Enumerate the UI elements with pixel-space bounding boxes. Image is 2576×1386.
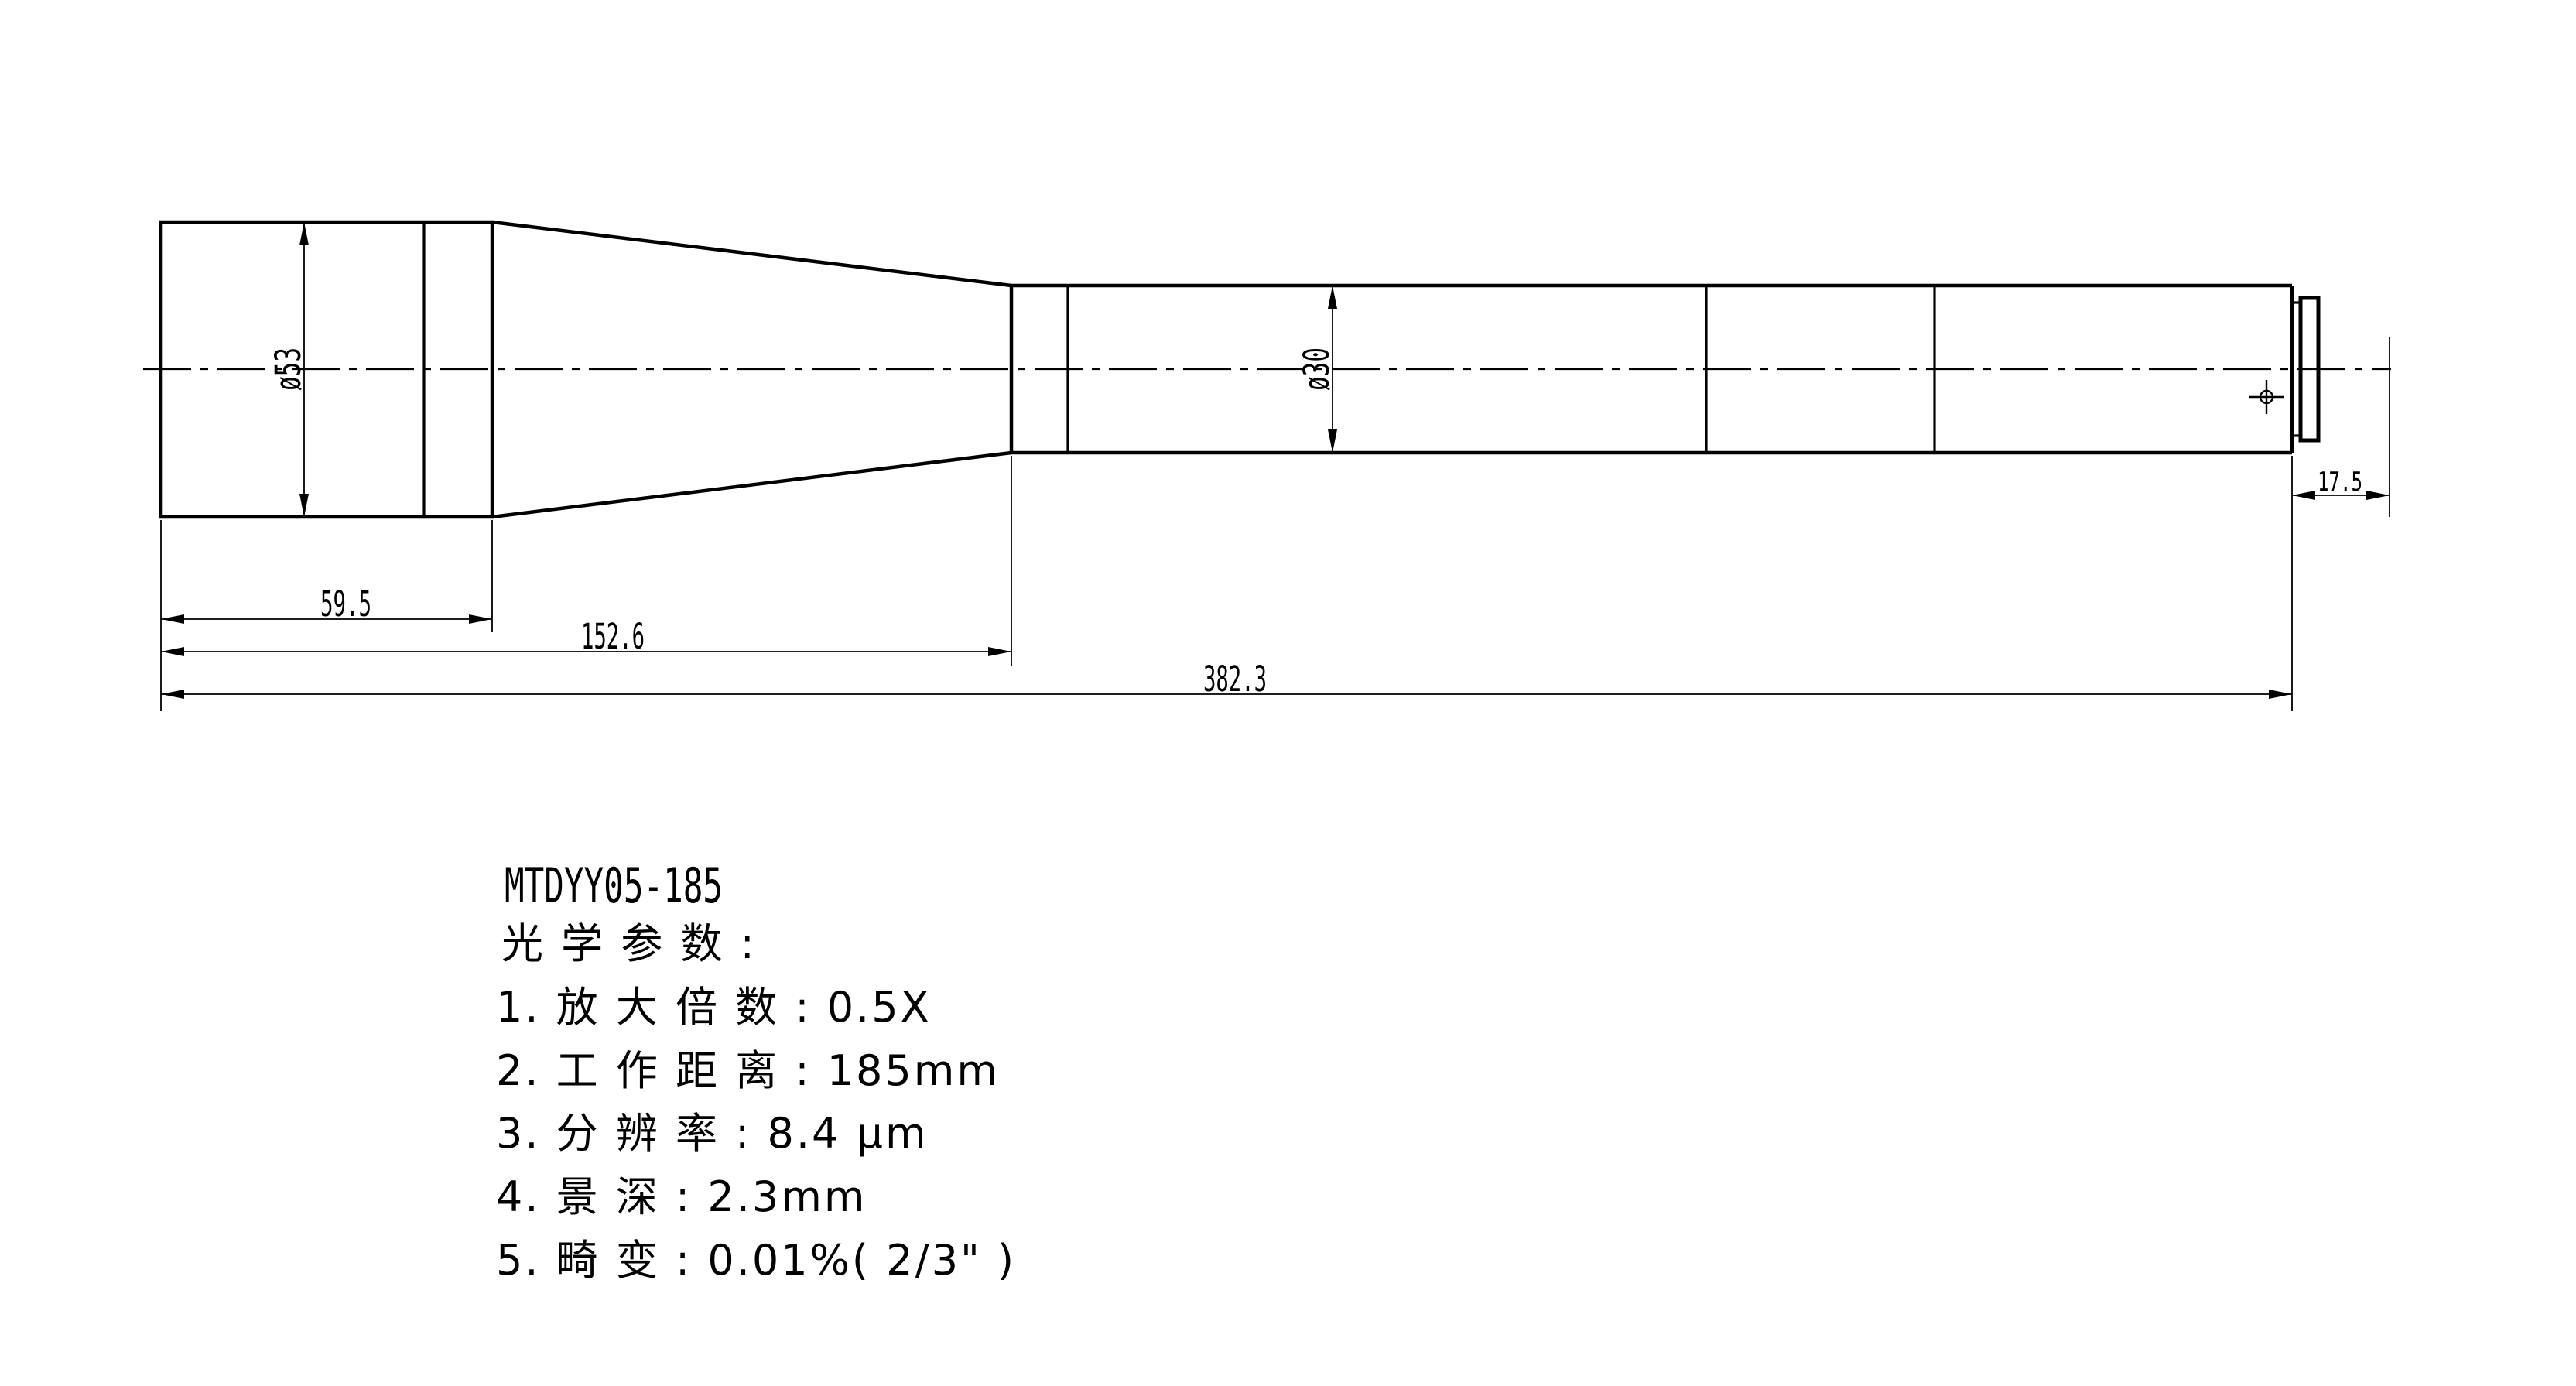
arrowhead-left-icon [2292, 491, 2315, 500]
datum-target-icon [2249, 380, 2284, 414]
dimension-mid-length: 152.6 [161, 616, 1011, 657]
dim-value-total-length: 382.3 [1203, 659, 1267, 700]
arrowhead-up-icon [1328, 286, 1337, 309]
dim-value-rear-diameter: ø53 [268, 347, 309, 391]
arrowhead-left-icon [161, 647, 184, 656]
dim-value-rear-length: 59.5 [320, 583, 371, 625]
cone-top-edge [492, 222, 1011, 286]
dimension-total-length: 382.3 [161, 659, 2292, 700]
dimension-rear-length: 59.5 [161, 583, 492, 625]
cone-bottom-edge [492, 453, 1011, 517]
dim-value-mid-length: 152.6 [581, 616, 645, 657]
note-item-magnification: 1. 放 大 倍 数 : 0.5X [496, 983, 932, 1032]
arrowhead-right-icon [469, 614, 492, 624]
dimension-tube-diameter: ø30 [1296, 286, 1337, 453]
arrowhead-right-icon [988, 647, 1011, 656]
arrowhead-right-icon [2366, 491, 2390, 500]
arrowhead-down-icon [1328, 429, 1337, 453]
arrowhead-up-icon [299, 222, 309, 245]
note-item-depth-of-field: 4. 景 深 : 2.3mm [496, 1172, 867, 1221]
dimension-flange-length: 17.5 [2292, 467, 2390, 500]
part-number-label: MTDYY05-185 [505, 857, 723, 914]
arrowhead-down-icon [299, 494, 309, 517]
note-item-working-distance: 2. 工 作 距 离 : 185mm [496, 1046, 1000, 1095]
arrowhead-right-icon [2269, 690, 2292, 699]
dim-value-flange-length: 17.5 [2318, 467, 2362, 498]
arrowhead-left-icon [161, 690, 184, 699]
dimension-rear-diameter: ø53 [268, 222, 309, 517]
note-item-distortion: 5. 畸 变 : 0.01%( 2/3" ) [496, 1236, 1016, 1285]
arrowhead-left-icon [161, 614, 184, 624]
notes-heading: 光 学 参 数 : [501, 919, 757, 968]
notes-block: MTDYY05-185 光 学 参 数 : 1. 放 大 倍 数 : 0.5X … [496, 857, 1016, 1285]
lens-technical-drawing: ø53 ø30 59.5 152.6 382.3 [0, 0, 2576, 1386]
extension-lines [161, 337, 2390, 711]
dim-value-tube-diameter: ø30 [1296, 347, 1337, 391]
note-item-resolution: 3. 分 辨 率 : 8.4 μm [496, 1109, 929, 1158]
